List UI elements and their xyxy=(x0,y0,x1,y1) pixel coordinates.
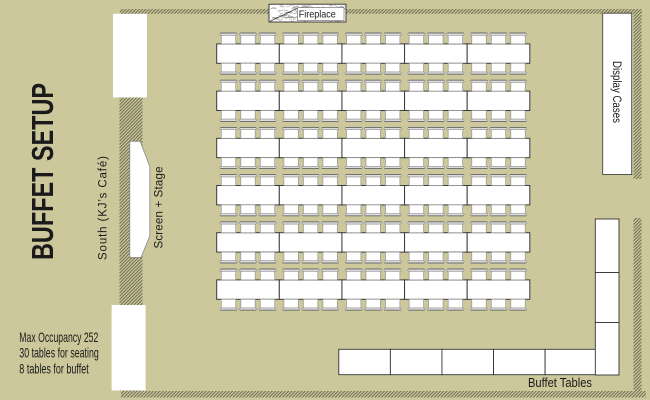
svg-text:South (KJ’s Café): South (KJ’s Café) xyxy=(98,156,110,260)
svg-text:Max Occupancy 252: Max Occupancy 252 xyxy=(19,329,98,345)
svg-text:BUFFET SETUP: BUFFET SETUP xyxy=(25,83,60,260)
svg-text:Screen + Stage: Screen + Stage xyxy=(154,167,166,249)
svg-text:8 tables for buffet: 8 tables for buffet xyxy=(19,360,89,376)
svg-text:Display Cases: Display Cases xyxy=(610,61,622,123)
svg-text:30 tables for seating: 30 tables for seating xyxy=(19,345,99,361)
svg-text:Buffet Tables: Buffet Tables xyxy=(528,375,592,390)
svg-text:Fireplace: Fireplace xyxy=(299,10,336,21)
